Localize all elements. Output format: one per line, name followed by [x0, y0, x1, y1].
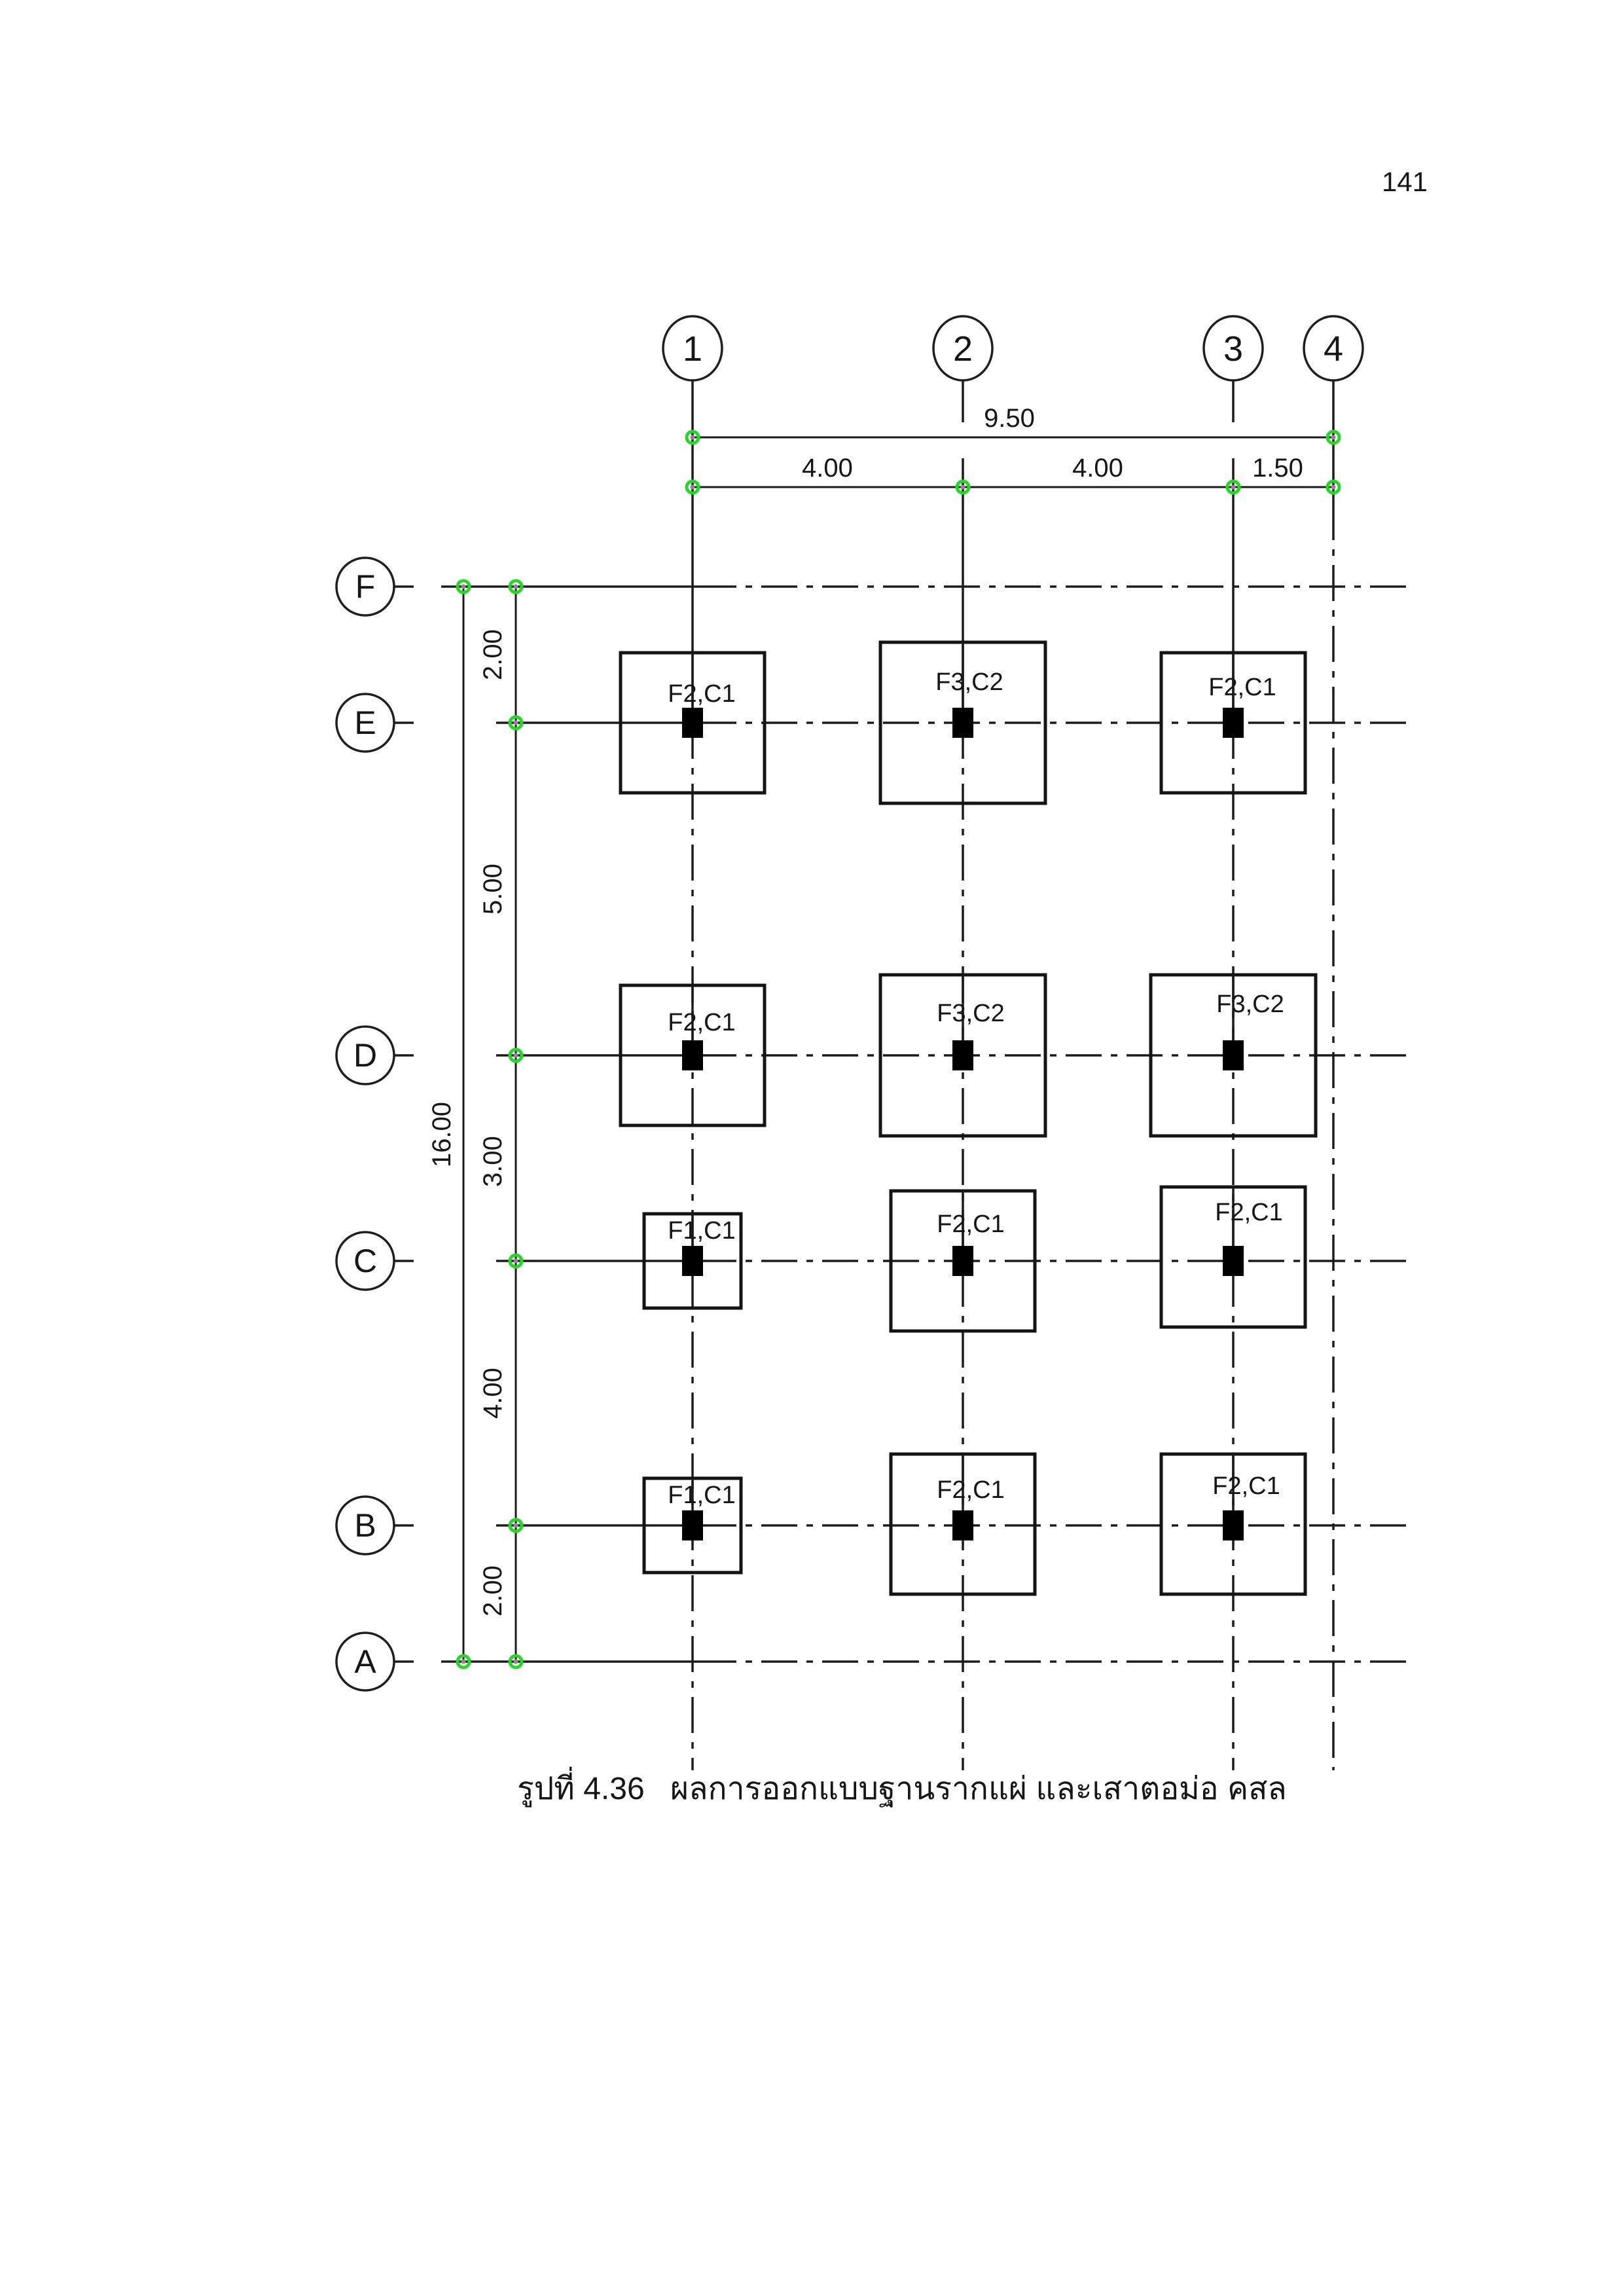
column-stub [1223, 708, 1244, 738]
horizontal-grid-lines [441, 587, 1407, 1662]
footing-B2: F2,C1 [891, 1454, 1035, 1594]
column-stub [1223, 1246, 1244, 1276]
row-bubble-B: B [336, 1497, 414, 1554]
vertical-grid-lines [693, 422, 1333, 1770]
grid-bubble-label: E [354, 704, 376, 741]
footing-label: F2,C1 [1208, 674, 1276, 701]
grid-intersection-markers [458, 431, 1339, 1667]
column-bubble-4: 4 [1304, 316, 1363, 422]
dimension-text-seg3: 1.50 [1252, 454, 1303, 483]
grid-bubble-label: A [354, 1643, 376, 1680]
footing-label: F2,C1 [668, 680, 735, 708]
dimension-text-DC: 3.00 [478, 1136, 507, 1187]
grid-bubble-label: C [353, 1243, 377, 1279]
footing-label: F3,C2 [937, 1000, 1004, 1027]
column-stub [952, 1040, 973, 1070]
column-stub [682, 1510, 703, 1540]
column-stub [952, 1246, 973, 1276]
grid-bubble-label: D [353, 1037, 377, 1074]
top-dimensions: 9.50 4.00 4.00 1.50 [693, 404, 1333, 487]
grid-bubble-label: 3 [1223, 329, 1243, 369]
footing-label: F2,C1 [1215, 1199, 1282, 1226]
dimension-text-ED: 5.00 [478, 864, 507, 915]
column-stub [1223, 1040, 1244, 1070]
column-stub [682, 708, 703, 738]
dimension-text-CB: 4.00 [478, 1368, 507, 1419]
page-number: 141 [1382, 166, 1428, 197]
figure-caption: รูปที่ 4.36 ผลการออกแบบฐานรากแผ่ และเสาต… [517, 1766, 1287, 1808]
row-bubble-E: E [336, 694, 414, 752]
row-bubble-F: F [336, 558, 414, 615]
dimension-text-FE: 2.00 [478, 629, 507, 680]
footing-label: F2,C1 [668, 1009, 735, 1036]
dimension-text-seg1: 4.00 [802, 454, 853, 483]
footing-label: F1,C1 [668, 1217, 735, 1245]
row-bubble-D: D [336, 1027, 414, 1084]
document-page: 141 1 2 3 4 F E [0, 0, 1624, 2296]
grid-bubble-label: B [354, 1507, 376, 1544]
column-stub [682, 1040, 703, 1070]
row-bubble-A: A [336, 1633, 414, 1690]
grid-bubble-label: 4 [1324, 329, 1343, 369]
grid-bubble-label: F [355, 568, 376, 605]
row-grid-bubbles: F E D C B A [336, 558, 414, 1690]
row-bubble-C: C [336, 1232, 414, 1290]
dimension-text-total: 9.50 [984, 404, 1035, 433]
column-bubble-3: 3 [1204, 316, 1263, 422]
left-dimensions: 16.00 2.00 5.00 3.00 4.00 2.00 [427, 587, 516, 1662]
caption-figure-number: รูปที่ 4.36 [517, 1766, 645, 1808]
dimension-text-BA: 2.00 [478, 1565, 507, 1616]
footing-label: F2,C1 [937, 1476, 1004, 1504]
column-stub [682, 1246, 703, 1276]
svg-text:รูปที่ 4.36 ผลการออกแบบฐ: รูปที่ 4.36 ผลการออกแบบฐานรากแผ่ และเสาต… [517, 1766, 1287, 1808]
footings: F2,C1 F3,C2 F2,C1 F2,C1 F3,C2 [621, 642, 1316, 1594]
footing-label: F2,C1 [1212, 1472, 1280, 1500]
grid-bubble-label: 2 [953, 329, 973, 369]
foundation-plan-drawing: 141 1 2 3 4 F E [0, 0, 1624, 2296]
footing-label: F3,C2 [935, 668, 1003, 696]
caption-text: ผลการออกแบบฐานรากแผ่ และเสาตอม่อ คสล [670, 1772, 1287, 1807]
dimension-text-left-total: 16.00 [427, 1102, 456, 1167]
footing-label: F1,C1 [668, 1482, 735, 1509]
dimension-text-seg2: 4.00 [1072, 454, 1123, 483]
column-stub [952, 708, 973, 738]
footing-B3: F2,C1 [1161, 1454, 1305, 1594]
grid-bubble-label: 1 [683, 329, 702, 369]
column-stub [1223, 1510, 1244, 1540]
footing-label: F3,C2 [1216, 991, 1284, 1018]
column-stub [952, 1510, 973, 1540]
footing-label: F2,C1 [937, 1211, 1004, 1238]
column-bubble-1: 1 [663, 316, 722, 422]
